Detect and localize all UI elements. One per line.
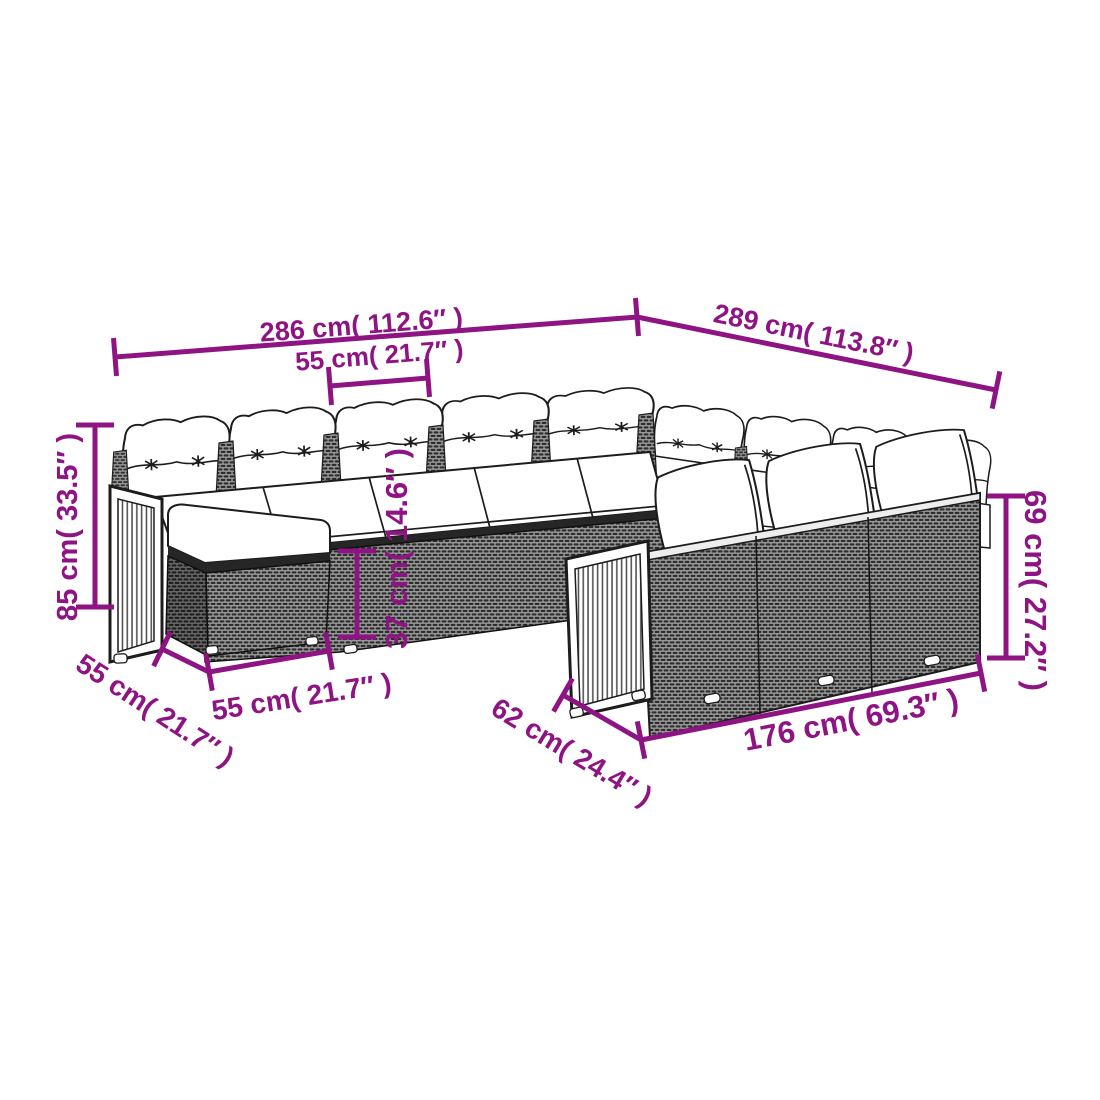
left-arm-slats bbox=[118, 499, 154, 652]
dim-back-right-width-label: 289 cm( 113.8″ ) bbox=[711, 298, 916, 368]
diagram-canvas: 286 cm( 112.6″ ) 289 cm( 113.8″ ) 55 cm(… bbox=[0, 0, 1100, 1100]
left-arm-panel bbox=[110, 486, 162, 663]
ottoman-foot bbox=[306, 636, 319, 645]
product-dimension-diagram: 286 cm( 112.6″ ) 289 cm( 113.8″ ) 55 cm(… bbox=[0, 0, 1100, 1100]
dim-seat-module-width: 55 cm( 21.7″ ) bbox=[294, 333, 464, 405]
dim-back-right-width: 289 cm( 113.8″ ) bbox=[637, 298, 1000, 408]
dim-seat-height-label: 37 cm( 14.6″ ) bbox=[379, 448, 414, 649]
arm-foot bbox=[631, 690, 646, 702]
dim-overall-height: 85 cm( 33.5″ ) bbox=[52, 425, 114, 621]
sofa-foot bbox=[344, 644, 358, 654]
dim-backrest-height-label: 69 cm( 27.2″ ) bbox=[1018, 490, 1053, 691]
ottoman bbox=[166, 505, 330, 657]
dim-overall-height-label: 85 cm( 33.5″ ) bbox=[52, 433, 84, 621]
wing-arm-slats bbox=[575, 554, 644, 706]
wing-arm-panel bbox=[566, 541, 652, 718]
dim-ottoman-width-label: 55 cm( 21.7″ ) bbox=[209, 667, 393, 726]
sofa-illustration bbox=[109, 387, 991, 738]
dim-backrest-height: 69 cm( 27.2″ ) bbox=[987, 490, 1053, 691]
arm-foot bbox=[114, 654, 127, 664]
